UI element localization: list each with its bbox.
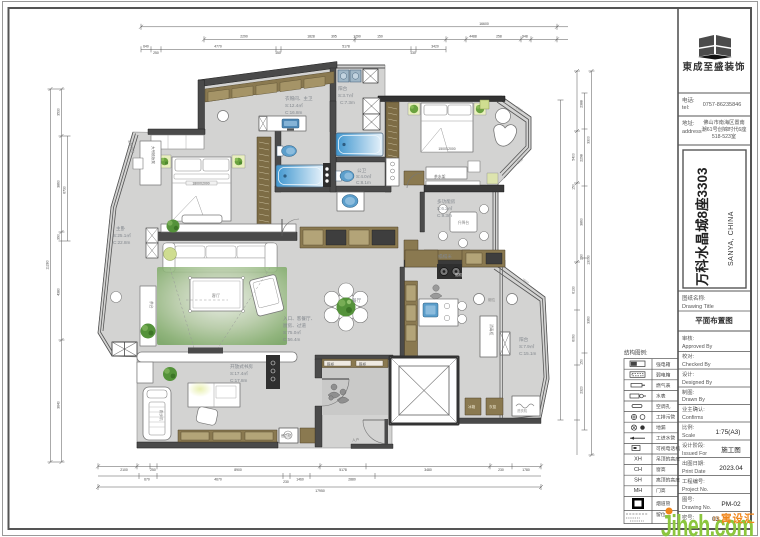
svg-text:衣篮: 衣篮 xyxy=(489,404,497,409)
svg-text:1780: 1780 xyxy=(522,468,530,472)
svg-text:tel:: tel: xyxy=(682,105,690,111)
svg-text:入户: 入户 xyxy=(352,437,360,442)
svg-text:榻榻米: 榻榻米 xyxy=(438,253,452,260)
svg-text:强电箱: 强电箱 xyxy=(656,361,671,368)
svg-text:电话:: 电话: xyxy=(682,96,695,104)
svg-text:厨房、过道: 厨房、过道 xyxy=(283,322,306,329)
svg-text:2880: 2880 xyxy=(348,478,356,482)
svg-text:Approved By: Approved By xyxy=(682,344,713,350)
svg-text:平面布置图: 平面布置图 xyxy=(695,315,733,325)
svg-text:390: 390 xyxy=(57,234,61,240)
svg-text:250: 250 xyxy=(153,51,159,55)
svg-text:東成至盛装饰: 東成至盛装饰 xyxy=(681,61,745,73)
svg-text:4670: 4670 xyxy=(214,478,222,482)
svg-text:烟道管: 烟道管 xyxy=(656,500,671,507)
svg-text:门高: 门高 xyxy=(656,487,666,494)
svg-text:Designed By: Designed By xyxy=(682,380,712,386)
svg-text:窗高: 窗高 xyxy=(656,466,666,473)
svg-text:250: 250 xyxy=(150,468,156,472)
svg-text:03: 03 xyxy=(713,517,720,523)
svg-text:Confirms: Confirms xyxy=(682,415,704,421)
svg-text:258: 258 xyxy=(496,35,502,39)
svg-text:6130: 6130 xyxy=(572,286,576,294)
svg-text:S:4.0㎡: S:4.0㎡ xyxy=(356,173,372,179)
svg-text:S:3.7㎡: S:3.7㎡ xyxy=(338,92,354,98)
svg-text:可视电话机: 可视电话机 xyxy=(656,445,680,452)
svg-text:640: 640 xyxy=(143,45,149,49)
svg-text:4770: 4770 xyxy=(214,45,222,49)
svg-text:茶水架: 茶水架 xyxy=(434,174,446,179)
svg-text:结构图例:: 结构图例: xyxy=(624,349,648,357)
svg-text:6730: 6730 xyxy=(63,186,67,194)
svg-text:3360: 3360 xyxy=(587,316,591,324)
svg-text:150: 150 xyxy=(572,184,576,190)
svg-text:万科水晶城8座3303: 万科水晶城8座3303 xyxy=(694,167,710,287)
svg-text:C:15.1m: C:15.1m xyxy=(519,351,537,356)
svg-text:1460: 1460 xyxy=(296,478,304,482)
svg-text:客厅: 客厅 xyxy=(212,292,220,299)
svg-text:670: 670 xyxy=(144,478,150,482)
svg-text:审核:: 审核: xyxy=(682,334,694,342)
svg-text:16600: 16600 xyxy=(479,22,489,26)
svg-text:518-523室: 518-523室 xyxy=(712,132,736,140)
svg-text:C:16.8m: C:16.8m xyxy=(285,110,303,115)
svg-text:业主确认:: 业主确认: xyxy=(682,405,705,413)
svg-text:3420: 3420 xyxy=(431,45,439,49)
svg-text:C:8.1m: C:8.1m xyxy=(356,180,371,185)
svg-text:1800X2000: 1800X2000 xyxy=(192,182,209,186)
svg-text:948: 948 xyxy=(522,35,528,39)
svg-text:工进水管: 工进水管 xyxy=(656,435,675,442)
svg-text:制图:: 制图: xyxy=(682,388,694,396)
svg-text:Project No.: Project No. xyxy=(682,487,708,493)
svg-text:4380: 4380 xyxy=(57,288,61,296)
svg-text:S:75.0㎡: S:75.0㎡ xyxy=(283,329,301,335)
svg-text:鞋柜: 鞋柜 xyxy=(359,362,367,367)
svg-text:吊顶的高度: 吊顶的高度 xyxy=(656,456,680,463)
svg-text:C:56.4m: C:56.4m xyxy=(283,337,301,342)
svg-text:水表: 水表 xyxy=(656,393,666,400)
svg-text:230: 230 xyxy=(498,468,504,472)
svg-text:衣帽间、主卫: 衣帽间、主卫 xyxy=(285,95,313,102)
svg-text:Scale: Scale xyxy=(682,433,695,439)
svg-text:6060: 6060 xyxy=(572,334,576,342)
svg-text:address: address xyxy=(682,129,702,135)
svg-text:地漏: 地漏 xyxy=(656,424,666,431)
svg-text:8900: 8900 xyxy=(234,468,242,472)
svg-text:地址:: 地址: xyxy=(682,119,695,127)
svg-text:工程编号:: 工程编号: xyxy=(682,477,705,485)
svg-text:施工图: 施工图 xyxy=(721,445,741,454)
svg-text:阳台: 阳台 xyxy=(338,85,348,92)
svg-text:1790: 1790 xyxy=(353,35,361,39)
svg-text:S:6.2㎡: S:6.2㎡ xyxy=(437,205,453,211)
svg-text:C:9.3m: C:9.3m xyxy=(437,213,452,218)
svg-text:5178: 5178 xyxy=(339,468,347,472)
svg-text:Issued For: Issued For xyxy=(682,451,707,457)
svg-text:2320: 2320 xyxy=(580,386,584,394)
svg-text:燃气表: 燃气表 xyxy=(656,382,671,389)
svg-text:跑步机: 跑步机 xyxy=(159,410,164,421)
svg-text:多功能房: 多功能房 xyxy=(437,198,456,205)
svg-text:设计阶段:: 设计阶段: xyxy=(682,441,705,449)
svg-text:冰箱: 冰箱 xyxy=(468,404,476,409)
svg-text:餐边柜: 餐边柜 xyxy=(281,433,292,438)
svg-text:2290: 2290 xyxy=(240,35,248,39)
svg-text:0757-86235846: 0757-86235846 xyxy=(703,102,742,108)
svg-text:鞋柜: 鞋柜 xyxy=(327,362,335,367)
svg-text:比例:: 比例: xyxy=(682,423,694,431)
svg-text:3480: 3480 xyxy=(424,468,432,472)
svg-text:潮61号创锦时代6座: 潮61号创锦时代6座 xyxy=(702,125,747,133)
svg-text:Drawing Title: Drawing Title xyxy=(682,304,714,310)
svg-text:烟位: 烟位 xyxy=(488,297,496,302)
svg-text:3640: 3640 xyxy=(57,401,61,409)
svg-text:3860: 3860 xyxy=(57,180,61,188)
svg-text:S:25.1㎡: S:25.1㎡ xyxy=(113,232,131,238)
svg-text:工排污管: 工排污管 xyxy=(656,414,675,421)
svg-text:17950: 17950 xyxy=(315,489,325,493)
svg-text:主卧: 主卧 xyxy=(116,225,126,232)
svg-text:150: 150 xyxy=(275,51,281,55)
svg-text:入口、客餐厅、: 入口、客餐厅、 xyxy=(283,315,315,322)
svg-text:S:7.9㎡: S:7.9㎡ xyxy=(519,343,535,349)
svg-text:图号:: 图号: xyxy=(682,495,694,503)
svg-text:11280: 11280 xyxy=(46,260,50,269)
svg-text:5400: 5400 xyxy=(572,153,576,161)
svg-text:SANYA, CHINA: SANYA, CHINA xyxy=(728,211,735,266)
svg-text:Print Date: Print Date xyxy=(682,469,706,475)
svg-text:CH: CH xyxy=(634,467,642,473)
svg-text:1:75(A3): 1:75(A3) xyxy=(716,429,741,436)
svg-text:弱电箱: 弱电箱 xyxy=(656,372,671,379)
svg-text:佛山市南海区置南: 佛山市南海区置南 xyxy=(703,118,745,126)
svg-text:395: 395 xyxy=(331,35,337,39)
svg-text:空调孔: 空调孔 xyxy=(656,403,671,410)
svg-text:Drawn By: Drawn By xyxy=(682,397,705,403)
svg-text:开放式书房: 开放式书房 xyxy=(230,363,253,370)
svg-text:2298: 2298 xyxy=(580,154,584,162)
svg-text:消毒柜: 消毒柜 xyxy=(489,324,494,336)
svg-text:XH: XH xyxy=(634,457,642,463)
svg-text:2388: 2388 xyxy=(580,100,584,108)
svg-text:图纸名称:: 图纸名称: xyxy=(682,294,706,302)
svg-text:3530: 3530 xyxy=(57,108,61,116)
svg-text:Checked By: Checked By xyxy=(682,362,711,368)
svg-text:茶台: 茶台 xyxy=(149,301,154,309)
svg-text:4488: 4488 xyxy=(469,35,477,39)
svg-text:大号梳妆凳: 大号梳妆凳 xyxy=(151,146,156,164)
svg-text:设计:: 设计: xyxy=(682,370,694,378)
svg-text:公卫: 公卫 xyxy=(357,168,367,173)
svg-text:1500X2000: 1500X2000 xyxy=(438,147,455,151)
svg-text:阳台: 阳台 xyxy=(519,336,529,343)
svg-text:升降台: 升降台 xyxy=(458,220,470,225)
svg-text:290: 290 xyxy=(580,254,584,260)
svg-text:2023.04: 2023.04 xyxy=(719,465,743,472)
svg-text:150: 150 xyxy=(580,359,584,365)
svg-text:寓设汇: 寓设汇 xyxy=(721,512,756,525)
svg-text:13090: 13090 xyxy=(587,255,591,265)
svg-text:1828: 1828 xyxy=(307,35,315,39)
svg-text:C:7.3m: C:7.3m xyxy=(340,100,355,105)
svg-text:出图日期:: 出图日期: xyxy=(682,459,705,467)
svg-text:SH: SH xyxy=(634,478,642,484)
svg-text:C:22.8m: C:22.8m xyxy=(113,240,131,245)
svg-text:5178: 5178 xyxy=(342,45,350,49)
svg-text:3860: 3860 xyxy=(580,218,584,226)
svg-text:洗衣机: 洗衣机 xyxy=(517,408,528,413)
svg-text:150: 150 xyxy=(377,35,383,39)
svg-text:S:12.4㎡: S:12.4㎡ xyxy=(285,102,303,108)
svg-text:2100: 2100 xyxy=(120,468,128,472)
svg-text:230: 230 xyxy=(283,480,289,484)
svg-text:S:17.4㎡: S:17.4㎡ xyxy=(230,370,248,376)
svg-text:C:17.8m: C:17.8m xyxy=(230,378,248,383)
svg-text:130: 130 xyxy=(410,51,416,55)
svg-text:烟机: 烟机 xyxy=(455,272,463,277)
svg-text:离顶的高度: 离顶的高度 xyxy=(656,477,680,484)
svg-text:校对:: 校对: xyxy=(682,352,694,360)
svg-text:MH: MH xyxy=(634,488,643,494)
svg-text:3300: 3300 xyxy=(587,136,591,144)
svg-text:餐厅: 餐厅 xyxy=(352,297,362,304)
